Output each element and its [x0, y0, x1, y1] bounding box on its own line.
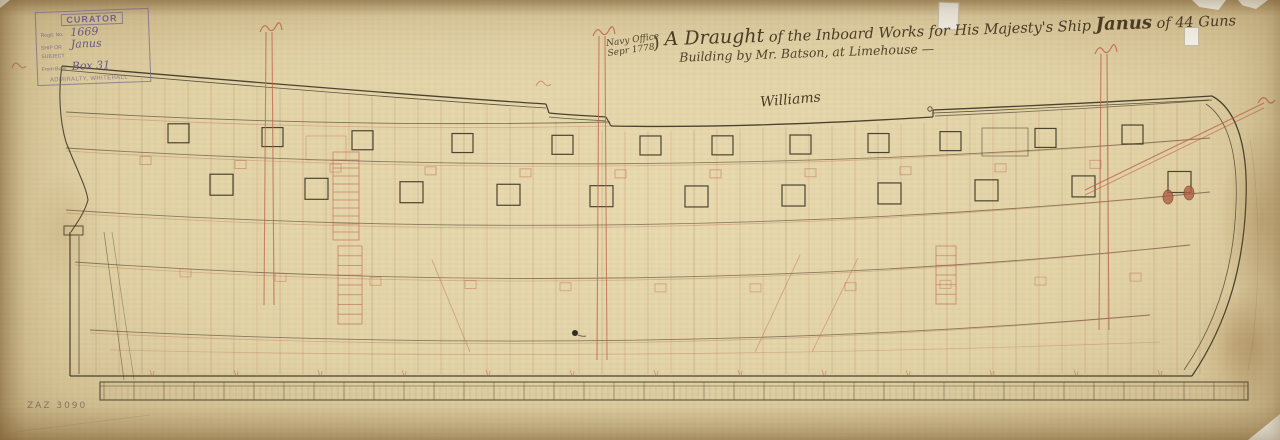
forecastle-rail-inner — [933, 100, 1209, 113]
scuttle-mark — [845, 283, 856, 291]
scuttle-mark — [465, 280, 476, 288]
lower-gunport — [400, 182, 423, 203]
upper-gunport — [712, 136, 733, 155]
mizzen-mast — [272, 32, 274, 305]
scuttle-mark — [805, 169, 816, 177]
station-number-mark — [318, 370, 322, 376]
station-number-mark — [1158, 370, 1162, 376]
scanned-draught-sheet: CURATOR Regd. No. 1669 SHIP OR SUBJECT J… — [0, 0, 1280, 440]
main-mast — [605, 36, 607, 360]
upper-gunport — [868, 134, 889, 153]
lower-gunport — [210, 174, 233, 195]
orlop-deck-line-red — [75, 245, 1190, 281]
scuttle-mark — [425, 167, 436, 175]
stamp-footer: ADMIRALTY, WHITEHALL — [42, 74, 136, 84]
bowsprit-flourish — [1258, 98, 1275, 103]
hold-rider — [755, 255, 800, 352]
main-mast — [597, 36, 599, 360]
paper-crease — [1248, 140, 1258, 370]
upper-gunport — [452, 134, 473, 153]
hawse-hole — [1163, 190, 1173, 204]
gun-deck-line-red — [66, 192, 1210, 228]
poop-break-step — [546, 104, 549, 113]
scuttle-mark — [655, 284, 666, 292]
scuttle-mark — [995, 164, 1006, 172]
stern-deadwood — [112, 232, 134, 380]
lower-gunport — [975, 180, 998, 201]
mizzen-mast-flourish — [260, 23, 282, 32]
scuttle-mark — [1130, 273, 1141, 281]
main-mast-flourish — [593, 27, 615, 36]
stern-deadwood — [104, 232, 124, 380]
gun-deck-line — [66, 192, 1210, 225]
upper-gunport — [940, 132, 961, 151]
break-scroll — [928, 107, 932, 111]
quarterdeck-rail — [549, 113, 606, 117]
scuttle-mark — [710, 170, 721, 178]
hawse-hole — [1184, 186, 1194, 200]
scuttle-mark — [750, 284, 761, 292]
lower-gunport — [685, 186, 708, 207]
ink-blot — [572, 330, 578, 336]
upper-gunport — [640, 136, 661, 155]
upper-gunport — [552, 135, 573, 154]
station-number-mark — [1074, 370, 1078, 376]
station-number-mark — [150, 370, 154, 376]
station-number-mark — [822, 370, 826, 376]
lower-gunport — [590, 186, 613, 207]
waist-gunwale — [611, 117, 933, 126]
scuttle-mark — [1090, 160, 1101, 168]
stem-inner — [1184, 104, 1236, 370]
hold-floor-line — [90, 315, 1150, 341]
ensign-staff-flourish — [12, 63, 26, 68]
station-number-mark — [990, 370, 994, 376]
scuttle-mark — [520, 169, 531, 177]
scuttle-mark — [275, 273, 286, 281]
companion-ladder — [333, 152, 359, 240]
upper-gunport — [1035, 128, 1056, 147]
upper-gunport — [790, 135, 811, 154]
catalogue-number: ZAZ 3090 — [27, 401, 87, 411]
fore-mast-flourish — [1095, 45, 1117, 54]
bowsprit — [1085, 103, 1264, 190]
lower-gunport — [878, 183, 901, 204]
curator-stamp: CURATOR Regd. No. 1669 SHIP OR SUBJECT J… — [35, 8, 152, 86]
station-number-mark — [402, 370, 406, 376]
quarterdeck-line — [66, 112, 610, 124]
lower-gunport — [782, 185, 805, 206]
lower-gunport — [305, 178, 328, 199]
quarterdeck-rail-inner — [549, 117, 606, 121]
orlop-deck-line — [75, 245, 1190, 278]
red-flourish — [536, 81, 551, 86]
fore-mast — [1099, 54, 1101, 330]
ship-plan-drawing — [0, 0, 1280, 440]
hold-floor-line-red — [90, 315, 1150, 344]
scuttle-mark — [900, 167, 911, 175]
brace-mark: ) — [652, 32, 660, 53]
scuttle-mark — [235, 161, 246, 169]
quarterdeck-break-step — [606, 117, 611, 126]
station-number-mark — [570, 370, 574, 376]
upper-deck-line-red — [66, 138, 1210, 166]
scuttle-mark — [180, 269, 191, 277]
mizzen-mast — [264, 32, 266, 305]
stamp-row-book: From Book Box 31 — [42, 59, 146, 75]
station-number-mark — [234, 370, 238, 376]
limber-strake-red — [110, 342, 1160, 355]
upper-gunport — [1122, 125, 1143, 144]
station-number-mark — [486, 370, 490, 376]
lower-gunport — [497, 184, 520, 205]
upper-gunport — [352, 131, 373, 150]
scuttle-mark — [615, 170, 626, 178]
pencil-crease — [15, 415, 150, 432]
scuttle-mark — [560, 283, 571, 291]
station-number-mark — [654, 370, 658, 376]
bowsprit — [1085, 108, 1264, 195]
quarterdeck-line-red — [66, 116, 610, 128]
scuttle-mark — [1035, 277, 1046, 285]
station-number-mark — [906, 370, 910, 376]
upper-gunport — [168, 124, 189, 143]
